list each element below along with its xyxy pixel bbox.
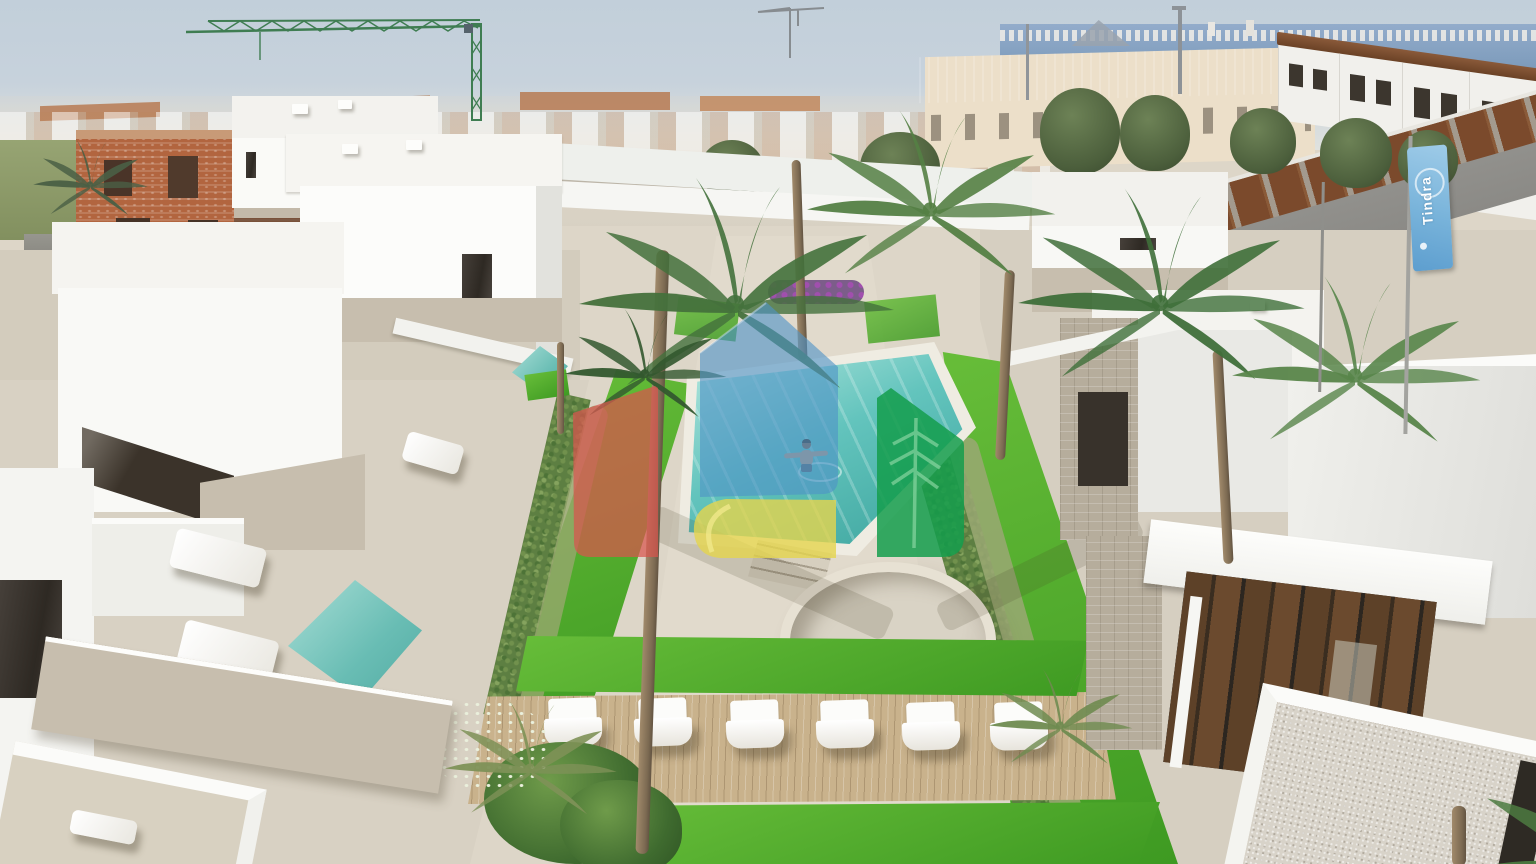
brand-watermark	[540, 280, 1000, 600]
brand-flag: Tindra	[1407, 144, 1453, 271]
flag-label: Tindra	[1417, 176, 1435, 226]
aerial-render-scene: Tindra	[0, 0, 1536, 864]
watermark-red-house	[573, 386, 658, 557]
palm-tree-icon	[910, 600, 1060, 716]
dark-door	[1078, 392, 1128, 486]
watermark-blue-house	[700, 302, 838, 497]
palm-tree-icon	[350, 618, 530, 757]
roof-vent	[292, 104, 308, 114]
sun-lounger	[723, 699, 787, 757]
palm-tree-icon	[0, 84, 90, 177]
window-slot	[246, 152, 256, 178]
palm-tree-icon	[1280, 588, 1536, 851]
roof-top	[52, 222, 344, 294]
lawn-below-deck	[612, 802, 1160, 864]
sun-lounger	[813, 699, 877, 757]
window-opening	[168, 156, 198, 198]
roof-vent	[342, 144, 358, 154]
palm-tree-icon	[1095, 158, 1355, 359]
watermark-green-house	[877, 388, 964, 557]
roof-vent	[338, 100, 352, 109]
sun-lounger	[69, 809, 138, 845]
watermark-yellow-leaf	[694, 499, 836, 558]
flag-dot-motif	[1420, 242, 1427, 250]
